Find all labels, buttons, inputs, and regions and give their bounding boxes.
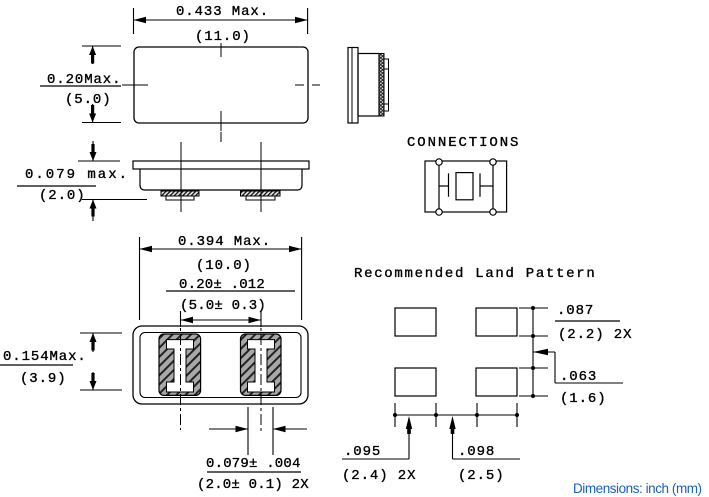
svg-text:.087: .087	[557, 303, 594, 319]
svg-text:(2.4) 2X: (2.4) 2X	[342, 468, 416, 484]
svg-text:0.433 Max.: 0.433 Max.	[176, 4, 269, 20]
svg-text:0.079 max.: 0.079 max.	[25, 167, 129, 183]
svg-text:(2.0): (2.0)	[39, 188, 86, 204]
svg-text:(2.0± 0.1) 2X: (2.0± 0.1) 2X	[197, 477, 309, 493]
svg-text:(2.2) 2X: (2.2) 2X	[558, 327, 632, 343]
svg-text:.063: .063	[560, 369, 597, 385]
svg-text:(10.0): (10.0)	[196, 258, 252, 274]
svg-text:CONNECTIONS: CONNECTIONS	[407, 135, 520, 151]
svg-text:0.394 Max.: 0.394 Max.	[178, 234, 271, 250]
svg-text:(11.0): (11.0)	[195, 29, 251, 45]
svg-text:(3.9): (3.9)	[20, 371, 67, 387]
svg-text:.095: .095	[344, 444, 381, 460]
svg-text:Recommended Land Pattern: Recommended Land Pattern	[354, 266, 596, 282]
svg-text:0.154Max.: 0.154Max.	[3, 349, 87, 365]
svg-text:(5.0± 0.3): (5.0± 0.3)	[180, 298, 266, 314]
svg-text:.098: .098	[458, 444, 495, 460]
svg-text:0.079± .004: 0.079± .004	[206, 456, 301, 472]
svg-text:(2.5): (2.5)	[458, 468, 505, 484]
svg-text:(5.0): (5.0)	[65, 92, 112, 108]
svg-text:Dimensions: inch (mm): Dimensions: inch (mm)	[573, 481, 702, 496]
svg-text:(1.6): (1.6)	[560, 391, 607, 407]
